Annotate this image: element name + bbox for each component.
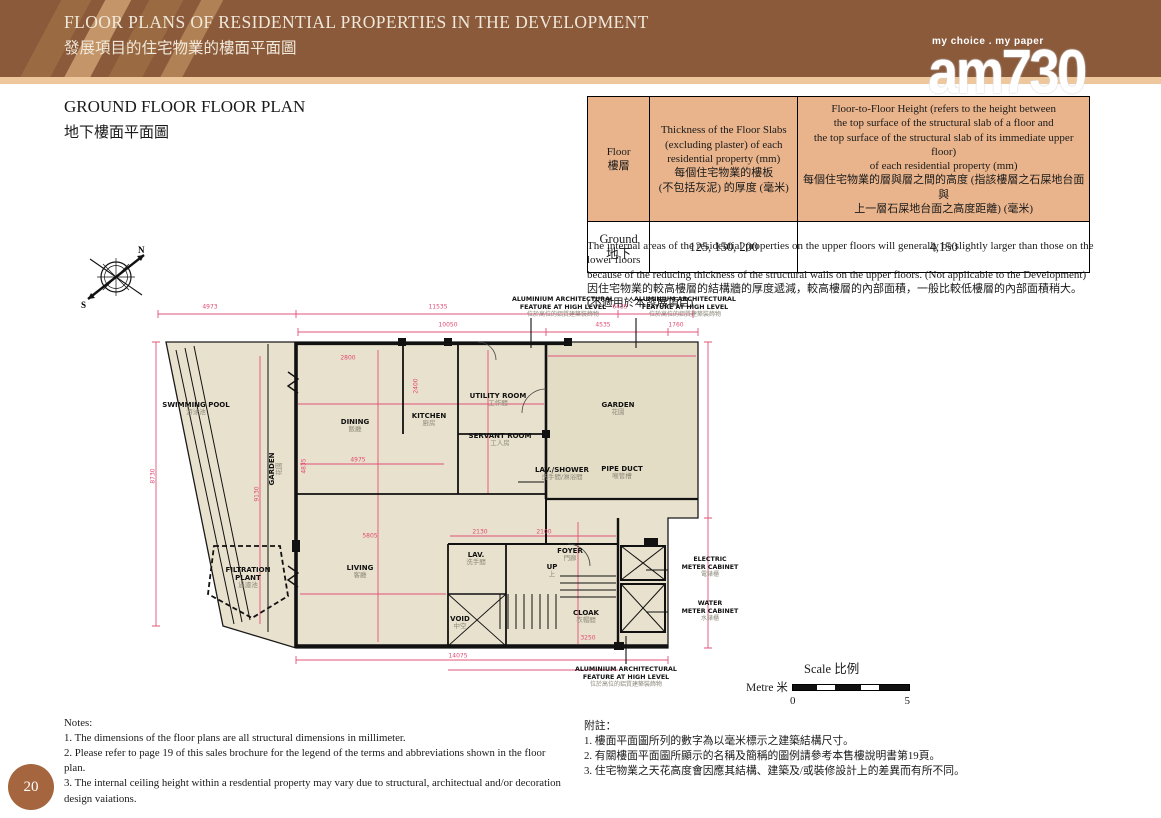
water-meter-label: WATER METER CABINET 水錶櫃 <box>668 600 752 622</box>
section-title: GROUND FLOOR FLOOR PLAN 地下樓面平面圖 <box>64 97 305 142</box>
compass-icon: N S <box>80 244 152 315</box>
note-line: 1. The dimensions of the floor plans are… <box>64 731 569 746</box>
notes-heading: Notes: <box>64 716 569 731</box>
page-number-badge: 20 <box>8 764 54 810</box>
note-line: 2. Please refer to page 19 of this sales… <box>64 746 569 776</box>
scale-unit: Metre 米 <box>746 679 788 695</box>
electric-meter-label: ELECTRIC METER CABINET 電錶櫃 <box>668 556 752 578</box>
svg-text:N: N <box>138 245 145 255</box>
am730-logo: my choice . my paper am730 <box>928 36 1128 100</box>
section-title-en: GROUND FLOOR FLOOR PLAN <box>64 97 305 117</box>
scale-title: Scale 比例 <box>804 658 916 677</box>
notes-heading: 附註： <box>584 719 1014 734</box>
notes-list: 1. The dimensions of the floor plans are… <box>64 731 569 807</box>
notes-chinese: 附註： 1. 樓面平面圖所列的數字為以毫米標示之建築結構尺寸。2. 有關樓面平面… <box>584 719 1014 779</box>
table-header-row: Floor 樓層 Thickness of the Floor Slabs (e… <box>588 97 1090 222</box>
scale-start: 0 <box>790 695 796 707</box>
page-title: FLOOR PLANS OF RESIDENTIAL PROPERTIES IN… <box>64 12 649 58</box>
col-height-header: Floor-to-Floor Height (refers to the hei… <box>798 97 1090 222</box>
col-floor-header: Floor 樓層 <box>588 97 650 222</box>
notes-list: 1. 樓面平面圖所列的數字為以毫米標示之建築結構尺寸。2. 有關樓面平面圖所顯示… <box>584 734 1014 779</box>
note-line: 1. 樓面平面圖所列的數字為以毫米標示之建築結構尺寸。 <box>584 734 1014 749</box>
aluminium-feature-label: ALUMINIUM ARCHITECTURAL FEATURE AT HIGH … <box>622 296 748 318</box>
scale-bar <box>792 684 910 691</box>
aluminium-feature-label: ALUMINIUM ARCHITECTURAL FEATURE AT HIGH … <box>500 296 626 318</box>
scale-legend: Scale 比例 Metre 米 0 5 <box>746 658 916 708</box>
disclaimer-en: The internal areas of the residential pr… <box>587 239 1095 282</box>
plan-drawing <box>148 294 752 698</box>
page-title-en: FLOOR PLANS OF RESIDENTIAL PROPERTIES IN… <box>64 12 649 33</box>
page-title-zh: 發展項目的住宅物業的樓面平面圖 <box>64 36 649 58</box>
floor-plan: SWIMMING POOL游泳池GARDEN花園DINING飯廳KITCHEN廚… <box>148 294 752 698</box>
brochure-page: FLOOR PLANS OF RESIDENTIAL PROPERTIES IN… <box>0 0 1161 818</box>
note-line: 3. 住宅物業之天花高度會因應其結構、建築及/或裝修設計上的差異而有所不同。 <box>584 764 1014 779</box>
notes-english: Notes: 1. The dimensions of the floor pl… <box>64 716 569 807</box>
note-line: 3. The internal ceiling height within a … <box>64 776 569 806</box>
scale-end: 5 <box>905 695 911 707</box>
col-thickness-header: Thickness of the Floor Slabs (excluding … <box>650 97 798 222</box>
svg-text:S: S <box>81 300 86 310</box>
logo-brand: am730 <box>928 47 1104 100</box>
section-title-zh: 地下樓面平面圖 <box>64 121 305 142</box>
aluminium-feature-label: ALUMINIUM ARCHITECTURAL FEATURE AT HIGH … <box>562 666 690 688</box>
note-line: 2. 有關樓面平面圖所顯示的名稱及簡稱的圖例請參考本售樓說明書第19頁。 <box>584 749 1014 764</box>
